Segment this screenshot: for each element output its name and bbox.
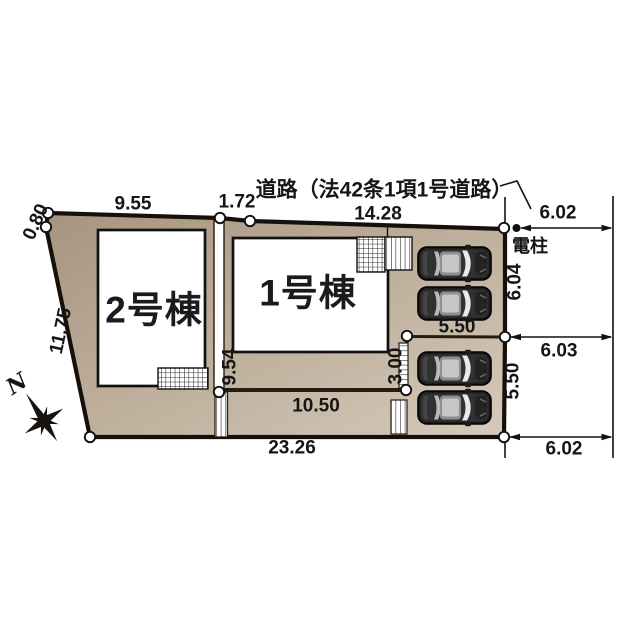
parcel-divider-lower-band xyxy=(215,392,228,437)
building-2-label: 2号棟 xyxy=(105,292,203,329)
dim-bottom-total: 23.26 xyxy=(268,439,316,458)
building-1-porch-hatch xyxy=(357,237,385,272)
dim-road-width-mid: 6.03 xyxy=(541,342,578,361)
car-icon xyxy=(418,389,491,426)
building-1-entrance-steps xyxy=(385,237,412,270)
building-2-porch-hatch xyxy=(158,368,208,389)
dim-road-width-top: 6.02 xyxy=(540,204,577,223)
dim-top-seg3: 14.28 xyxy=(354,205,402,224)
car-icon xyxy=(418,350,491,387)
site-plan: 道路（法42条1項1号道路） 電柱 2号棟 1号棟 9.55 1.72 14.2… xyxy=(0,0,640,640)
walkway-band-lower xyxy=(391,400,407,434)
car-icon xyxy=(418,245,491,282)
dim-road-width-bottom: 6.02 xyxy=(546,440,583,459)
utility-pole-icon xyxy=(513,224,521,232)
dim-top-seg1: 9.55 xyxy=(115,195,152,214)
dim-top-seg2: 1.72 xyxy=(219,193,256,212)
dim-inner-step: 3.00 xyxy=(387,348,406,385)
road-label: 道路（法42条1項1号道路） xyxy=(256,180,513,201)
dim-inner-divider: 9.54 xyxy=(221,349,240,386)
dim-right-edge-lower: 5.50 xyxy=(504,363,523,400)
building-1-label: 1号棟 xyxy=(259,275,357,312)
dim-parking-width: 5.50 xyxy=(439,318,476,337)
utility-pole-label: 電柱 xyxy=(512,237,548,255)
site-plan-drawing xyxy=(0,0,640,640)
dim-inner-bottom: 10.50 xyxy=(292,397,340,416)
dimension-arrowheads xyxy=(509,225,613,441)
dim-right-edge-upper: 6.04 xyxy=(506,264,525,301)
